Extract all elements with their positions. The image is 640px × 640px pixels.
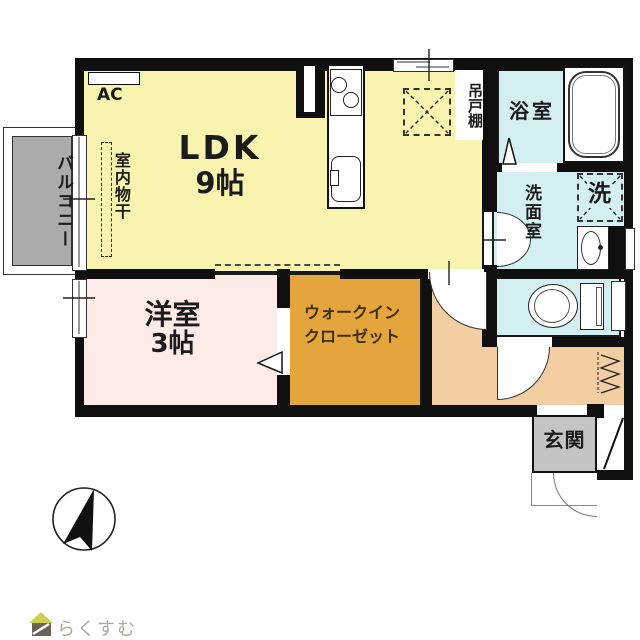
wall-segment	[340, 269, 428, 279]
wall-segment	[597, 470, 633, 480]
wall-segment	[422, 269, 432, 415]
western-room-label: 洋室 3帖	[115, 299, 230, 359]
floor-plan: バルコニー 玄関	[0, 0, 640, 640]
wall-segment	[75, 405, 537, 417]
ldk-size: 9帖	[150, 167, 290, 199]
opening-dashed-line	[215, 264, 340, 266]
entrance-door-leaf	[604, 418, 623, 469]
window	[611, 281, 626, 331]
western-room-name: 洋室	[115, 299, 230, 330]
bathtub-inner2	[572, 75, 616, 154]
wall-segment	[277, 375, 290, 415]
faucet-icon	[330, 170, 339, 186]
stove-burner-icon	[331, 77, 347, 93]
wic-line2: クローゼット	[285, 328, 419, 346]
door-gap	[497, 337, 552, 347]
ac-label: AC	[97, 86, 123, 105]
window	[72, 135, 87, 271]
toilet-bowl-inner	[534, 289, 570, 323]
toilet-tank-inner	[596, 287, 602, 326]
window	[393, 59, 454, 72]
wall-segment	[277, 269, 290, 308]
ac-unit-icon	[88, 72, 140, 85]
wall-segment	[75, 269, 215, 279]
refrigerator-space	[403, 88, 451, 136]
western-room-size: 3帖	[115, 330, 230, 359]
ldk-name: LDK	[150, 130, 290, 167]
bathroom-label: 浴室	[500, 100, 564, 122]
walk-in-closet-label: ウォークイン クローゼット	[285, 304, 419, 346]
balcony-label: バルコニー	[12, 140, 72, 262]
wall-segment	[75, 336, 84, 415]
washing-machine-label: 洗	[587, 182, 612, 208]
door-gap	[502, 163, 557, 172]
wall-segment	[552, 337, 633, 347]
washroom-label: 洗面室	[521, 184, 540, 241]
wall-segment	[482, 58, 497, 212]
stove-burner-icon	[343, 92, 359, 108]
indoor-drying-box	[101, 142, 112, 257]
brand-house-icon	[29, 612, 53, 636]
window	[72, 279, 87, 338]
compass-icon	[53, 488, 115, 551]
indoor-drying-label: 室内物干	[112, 152, 130, 220]
wall-segment	[482, 269, 633, 279]
duct-slot	[304, 66, 315, 112]
hanging-cupboard-label: 吊戸棚	[455, 74, 483, 136]
washbasin-faucet-dot	[598, 245, 603, 250]
ldk-label: LDK 9帖	[150, 130, 290, 199]
brand-logo-text: らくすむ	[57, 615, 137, 640]
wic-line1: ウォークイン	[285, 304, 419, 322]
window	[625, 228, 635, 270]
wall-segment	[609, 226, 624, 270]
entrance-door-swing	[553, 473, 597, 517]
wall-segment	[75, 58, 84, 135]
entrance-label: 玄関	[534, 429, 595, 451]
